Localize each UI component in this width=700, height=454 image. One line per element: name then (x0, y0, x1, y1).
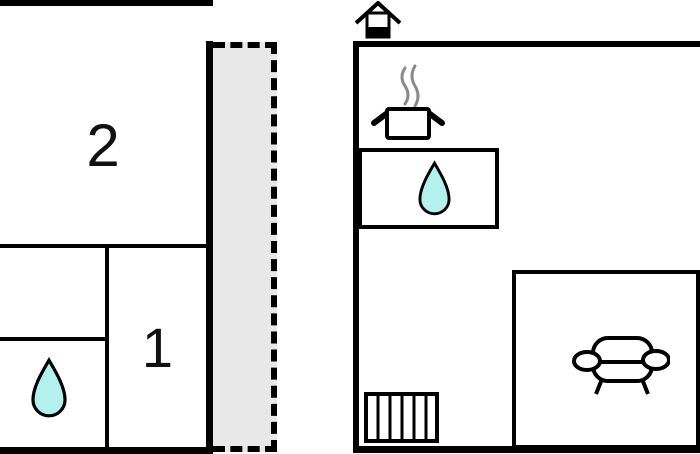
water-drop-icon (417, 158, 452, 219)
wall-segment (0, 0, 213, 6)
stairs-icon (364, 392, 439, 443)
chimney-icon (355, 1, 401, 39)
room-2-label: 2 (0, 47, 206, 244)
cooking-pot-icon (370, 104, 446, 142)
wall-segment (353, 41, 359, 453)
floor-plan: 2 1 (0, 0, 700, 454)
wall-segment (0, 337, 107, 341)
sofa-icon (572, 335, 670, 397)
terrace-area (213, 42, 277, 452)
steam-icon (397, 64, 423, 108)
wall-segment (353, 41, 700, 47)
room-1-label: 1 (109, 248, 206, 447)
water-drop-icon (29, 357, 69, 419)
